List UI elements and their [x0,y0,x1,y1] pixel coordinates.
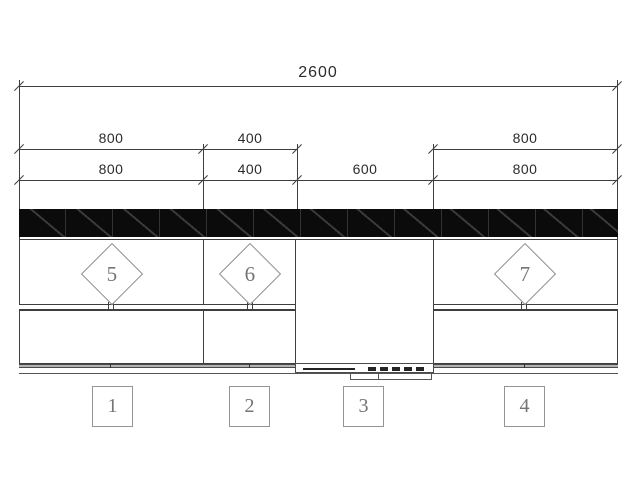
handle-tick [110,363,111,368]
dim-label-600: 600 [325,161,405,177]
appliance-base-tray [350,372,432,380]
square-marker-3: 3 [343,386,384,427]
dimension-line-row3 [19,180,618,181]
appliance-body [295,239,434,364]
dimension-total-label: 2600 [268,64,368,82]
square-marker-1: 1 [92,386,133,427]
dim-label-800-right2: 800 [485,161,565,177]
dim-label-800-left2: 800 [71,161,151,177]
handle-tick [252,302,253,309]
control-strip-button [416,367,424,371]
diamond-marker-6-label: 6 [245,262,256,287]
control-strip-button [380,367,388,371]
base-cabinet-left [19,310,204,364]
control-strip-button [368,367,376,371]
toe-kick-left [19,364,298,368]
dim-label-800-left: 800 [71,130,151,146]
handle-tick [249,363,250,368]
control-strip-button [392,367,400,371]
diamond-marker-7-label: 7 [520,262,531,287]
appliance-base-tray-divider [378,372,379,380]
handle-tick [524,363,525,368]
dim-label-400: 400 [210,130,290,146]
cornice-hatched-band [19,209,618,237]
dimension-line-row2-left [19,149,298,150]
toe-kick-right [433,364,618,368]
dimension-line-row2-right [433,149,618,150]
extension-line-297 [297,144,298,210]
extension-line-433 [433,144,434,210]
dim-label-800-right: 800 [485,130,565,146]
control-strip-dash [303,368,355,370]
floor-line [19,373,618,374]
diamond-marker-5-label: 5 [107,262,118,287]
base-cabinet-mid [203,310,298,364]
square-marker-4-label: 4 [520,395,530,418]
handle-tick [108,302,109,309]
elevation-drawing: 2600 800 400 800 800 400 600 800 5 [0,0,640,480]
dim-label-400-2: 400 [210,161,290,177]
handle-tick [521,302,522,309]
square-marker-1-label: 1 [108,395,118,418]
square-marker-3-label: 3 [359,395,369,418]
extension-line-203 [203,144,204,210]
square-marker-2-label: 2 [245,395,255,418]
square-marker-4: 4 [504,386,545,427]
dimension-line-total [19,86,618,87]
square-marker-2: 2 [229,386,270,427]
base-cabinet-right [433,310,618,364]
control-strip-button [404,367,412,371]
